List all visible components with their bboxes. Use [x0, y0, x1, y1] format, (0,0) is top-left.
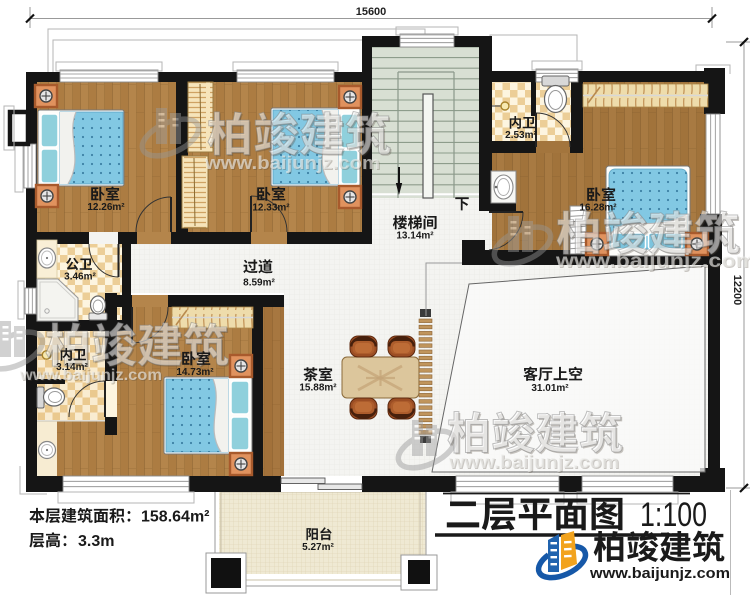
- svg-text:12.33m²: 12.33m²: [252, 203, 290, 214]
- svg-text:14.73m²: 14.73m²: [176, 367, 214, 378]
- svg-text:3.14m²: 3.14m²: [56, 362, 88, 373]
- svg-text:www.baijunjz.com: www.baijunjz.com: [204, 152, 380, 173]
- svg-text:3.3m: 3.3m: [78, 533, 114, 550]
- svg-text:15600: 15600: [356, 6, 387, 18]
- svg-text:15.88m²: 15.88m²: [299, 383, 337, 394]
- svg-text:2.53m²: 2.53m²: [505, 130, 537, 141]
- svg-text:13.14m²: 13.14m²: [396, 231, 434, 242]
- svg-text:www.baijunjz.com: www.baijunjz.com: [589, 565, 730, 582]
- svg-text:www.baijunjz.com: www.baijunjz.com: [448, 452, 619, 472]
- svg-text:5.27m²: 5.27m²: [302, 542, 334, 553]
- svg-text:www.baijunjz.com: www.baijunjz.com: [555, 251, 750, 272]
- svg-text:12200: 12200: [731, 275, 743, 306]
- svg-text:16.28m²: 16.28m²: [579, 203, 617, 214]
- svg-text:158.64m²: 158.64m²: [141, 509, 210, 526]
- svg-text:12.26m²: 12.26m²: [87, 202, 125, 213]
- svg-text:31.01m²: 31.01m²: [531, 383, 569, 394]
- svg-text:www.baijunjz.com: www.baijunjz.com: [19, 367, 162, 384]
- svg-text:8.59m²: 8.59m²: [243, 278, 275, 289]
- svg-text:3.46m²: 3.46m²: [64, 272, 96, 283]
- svg-text:1:100: 1:100: [640, 496, 707, 534]
